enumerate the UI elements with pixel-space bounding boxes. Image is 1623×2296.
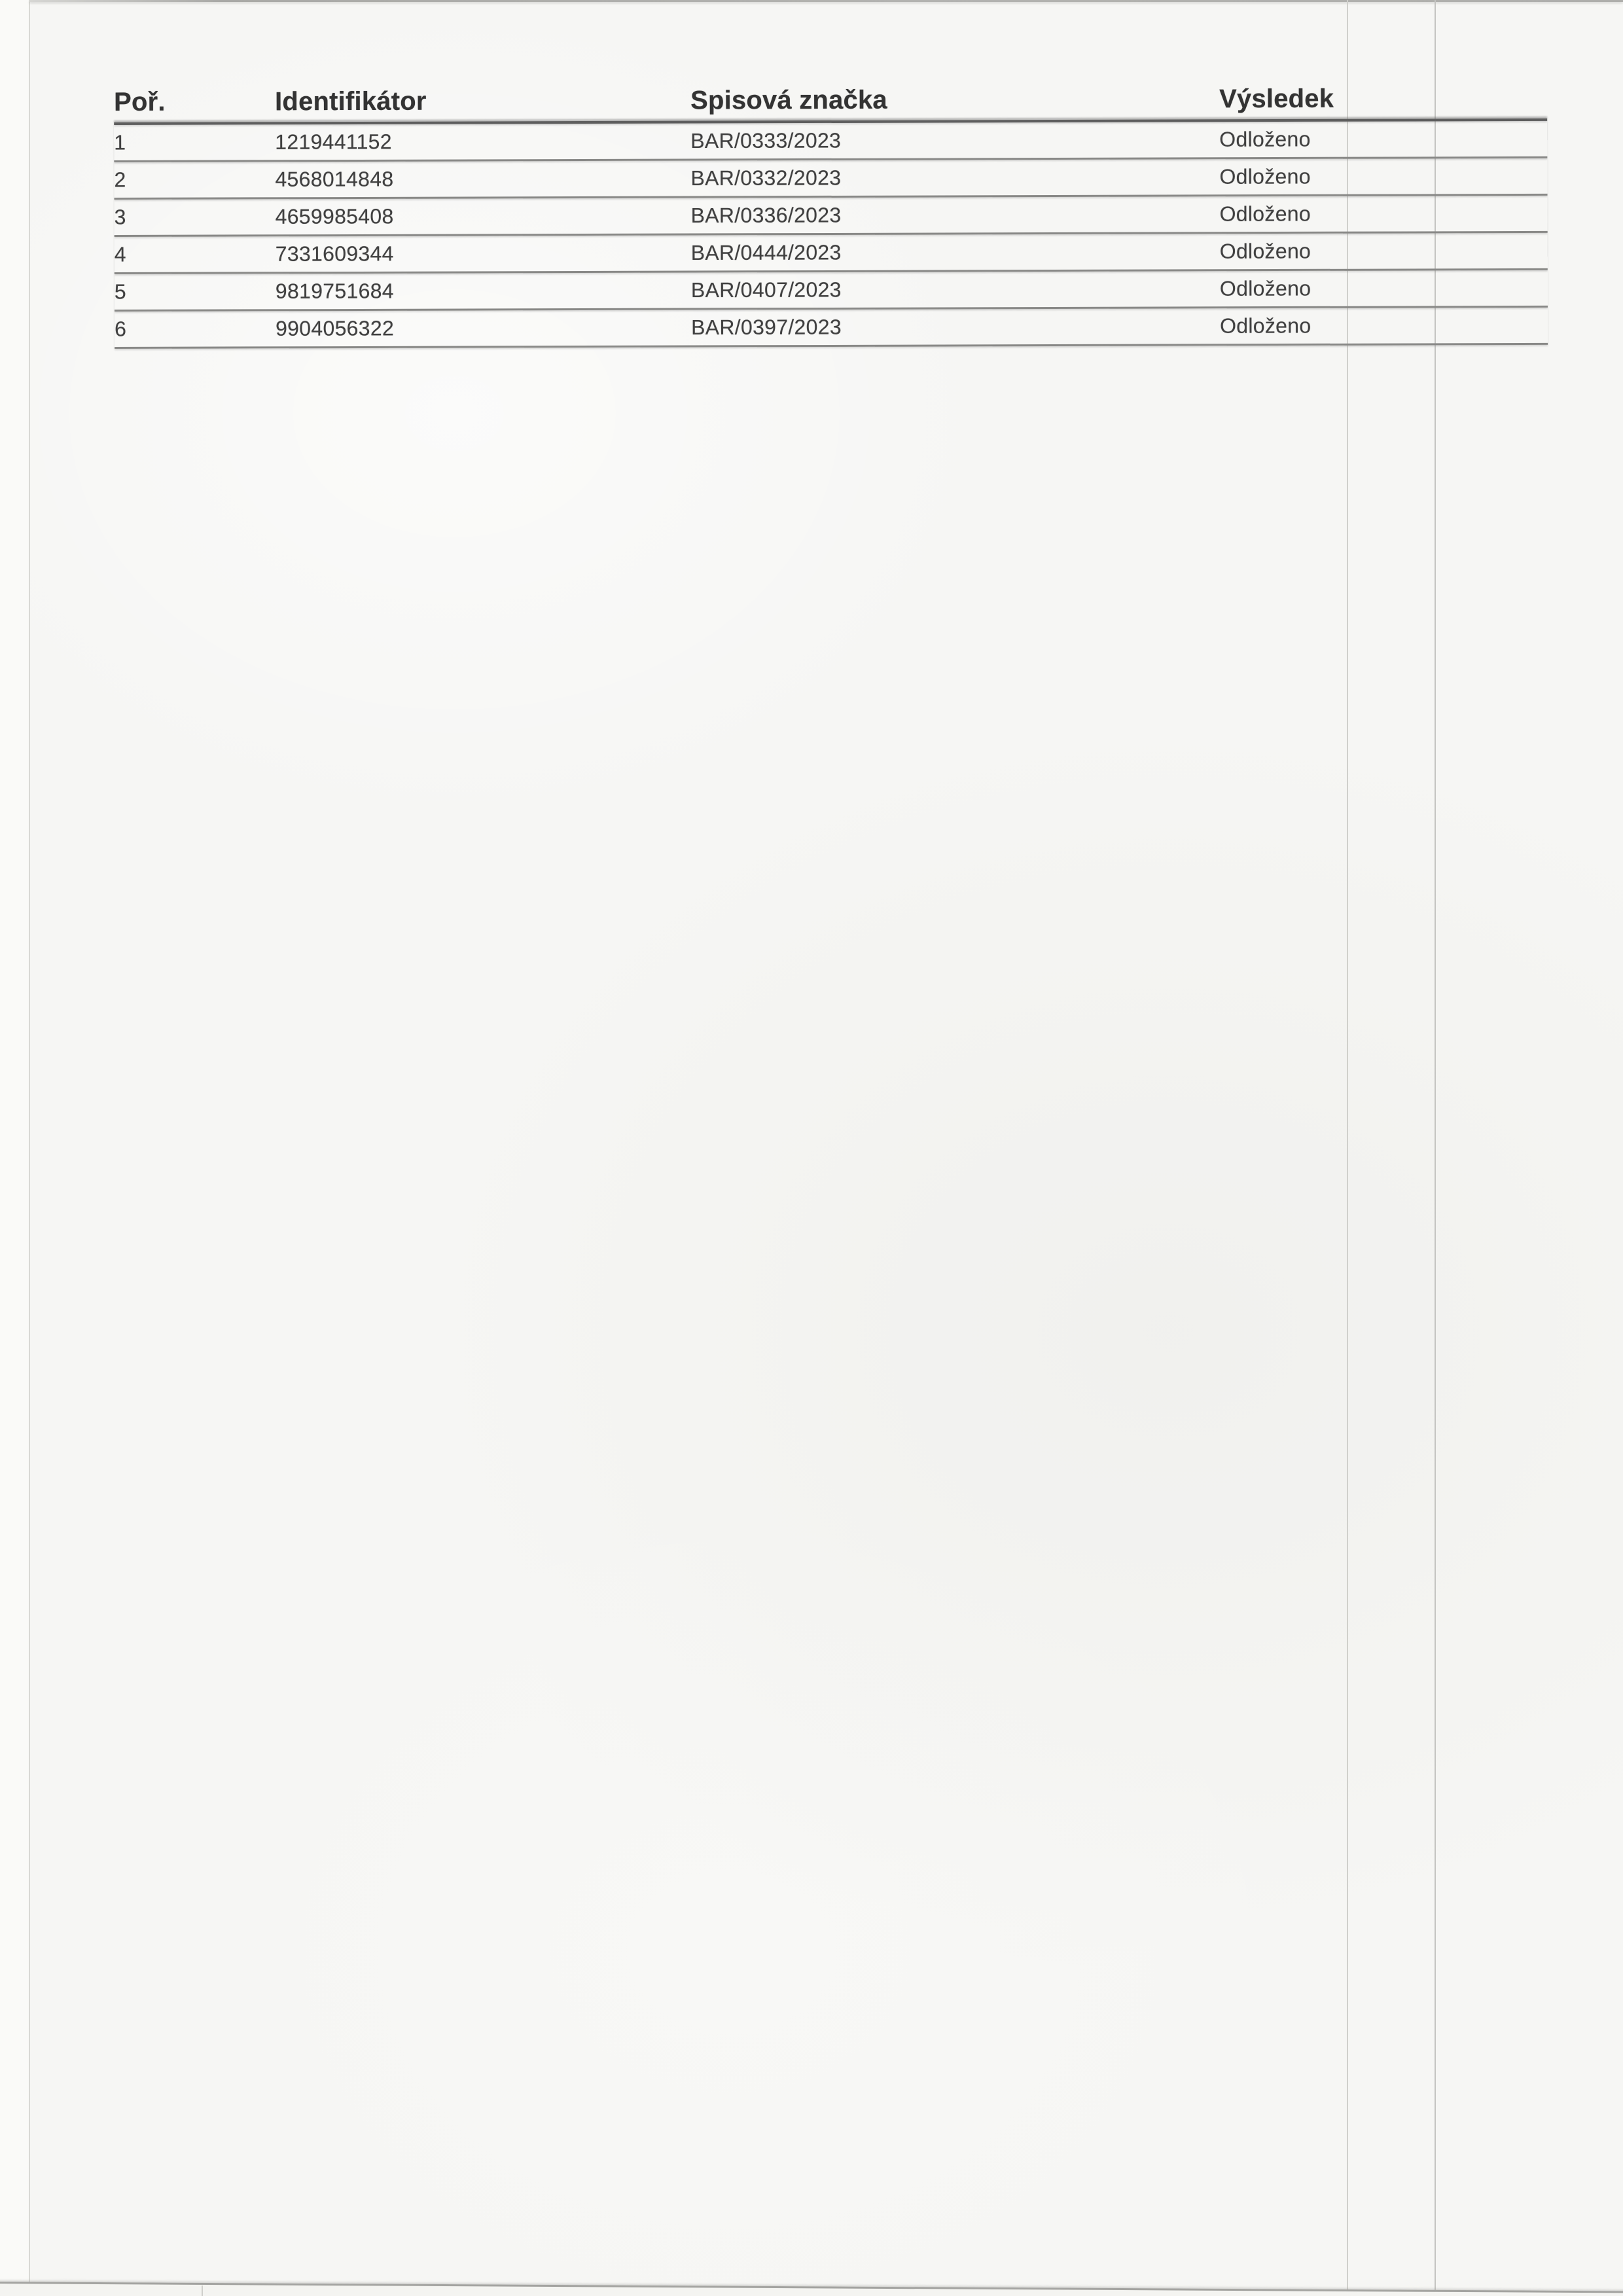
cell-identifikator: 4659985408	[276, 204, 394, 229]
results-table: Poř. Identifikátor Spisová značka Výsled…	[114, 78, 1548, 349]
page-bottom-edge	[0, 2282, 1623, 2296]
cell-poradi: 1	[114, 130, 126, 154]
cell-poradi: 5	[115, 279, 126, 304]
table-row: 2 4568014848 BAR/0332/2023 Odloženo	[114, 158, 1547, 200]
column-header-spisova-znacka: Spisová značka	[690, 86, 887, 116]
cell-vysledek: Odloženo	[1220, 314, 1311, 338]
scanner-artifact-line	[202, 2286, 203, 2296]
scanned-document-page: Poř. Identifikátor Spisová značka Výsled…	[0, 0, 1623, 2296]
cell-identifikator: 1219441152	[275, 130, 392, 154]
cell-spisova-znacka: BAR/0444/2023	[691, 240, 842, 265]
cell-poradi: 2	[114, 168, 126, 192]
scanner-left-margin	[0, 0, 29, 2296]
cell-spisova-znacka: BAR/0397/2023	[691, 315, 842, 340]
column-header-identifikator: Identifikátor	[275, 87, 427, 117]
cell-poradi: 6	[115, 317, 126, 341]
cell-poradi: 3	[115, 205, 126, 229]
cell-spisova-znacka: BAR/0336/2023	[691, 203, 842, 228]
cell-poradi: 4	[115, 242, 126, 266]
column-header-poradi: Poř.	[114, 88, 166, 117]
cell-identifikator: 4568014848	[275, 167, 393, 192]
cell-vysledek: Odloženo	[1219, 127, 1310, 151]
cell-spisova-znacka: BAR/0332/2023	[690, 166, 841, 190]
cell-vysledek: Odloženo	[1220, 276, 1311, 300]
table-row: 1 1219441152 BAR/0333/2023 Odloženo	[114, 121, 1547, 162]
cell-identifikator: 9904056322	[276, 316, 394, 341]
cell-vysledek: Odloženo	[1220, 202, 1311, 226]
table-row: 5 9819751684 BAR/0407/2023 Odloženo	[115, 270, 1548, 312]
cell-identifikator: 9819751684	[276, 279, 394, 304]
cell-spisova-znacka: BAR/0333/2023	[690, 128, 841, 153]
cell-spisova-znacka: BAR/0407/2023	[691, 278, 842, 302]
cell-vysledek: Odloženo	[1220, 239, 1311, 263]
cell-identifikator: 7331609344	[276, 242, 394, 266]
table-row: 6 9904056322 BAR/0397/2023 Odloženo	[115, 308, 1548, 349]
table-row: 4 7331609344 BAR/0444/2023 Odloženo	[115, 233, 1548, 274]
column-header-vysledek: Výsledek	[1219, 84, 1334, 114]
table-header-row: Poř. Identifikátor Spisová značka Výsled…	[114, 78, 1547, 122]
scan-top-edge-line	[29, 0, 1623, 2]
cell-vysledek: Odloženo	[1219, 164, 1310, 188]
table-row: 3 4659985408 BAR/0336/2023 Odloženo	[115, 196, 1548, 237]
page-left-edge-line	[29, 0, 30, 2284]
